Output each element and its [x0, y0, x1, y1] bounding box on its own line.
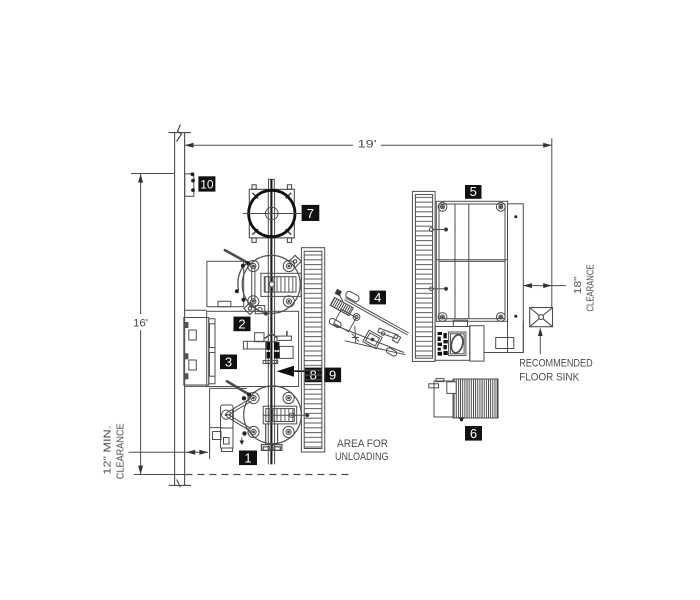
svg-text:4: 4 — [374, 290, 381, 305]
svg-text:5: 5 — [470, 184, 477, 199]
svg-text:FLOOR SINK: FLOOR SINK — [519, 372, 580, 384]
svg-text:10: 10 — [200, 178, 214, 192]
svg-text:7: 7 — [307, 206, 314, 221]
svg-text:12" MIN.: 12" MIN. — [102, 426, 114, 475]
svg-text:CLEARANCE: CLEARANCE — [115, 423, 127, 479]
svg-text:3: 3 — [225, 354, 232, 369]
svg-text:16': 16' — [133, 317, 148, 329]
svg-text:UNLOADING: UNLOADING — [335, 451, 389, 463]
svg-text:1: 1 — [244, 450, 251, 465]
svg-text:18": 18" — [572, 276, 584, 294]
svg-text:9: 9 — [329, 367, 336, 382]
svg-text:6: 6 — [470, 426, 477, 441]
svg-text:CLEARANCE: CLEARANCE — [585, 265, 597, 312]
svg-text:2: 2 — [238, 316, 245, 331]
svg-text:AREA FOR: AREA FOR — [337, 438, 388, 450]
svg-text:19': 19' — [358, 139, 377, 151]
svg-text:RECOMMENDED: RECOMMENDED — [519, 358, 593, 370]
